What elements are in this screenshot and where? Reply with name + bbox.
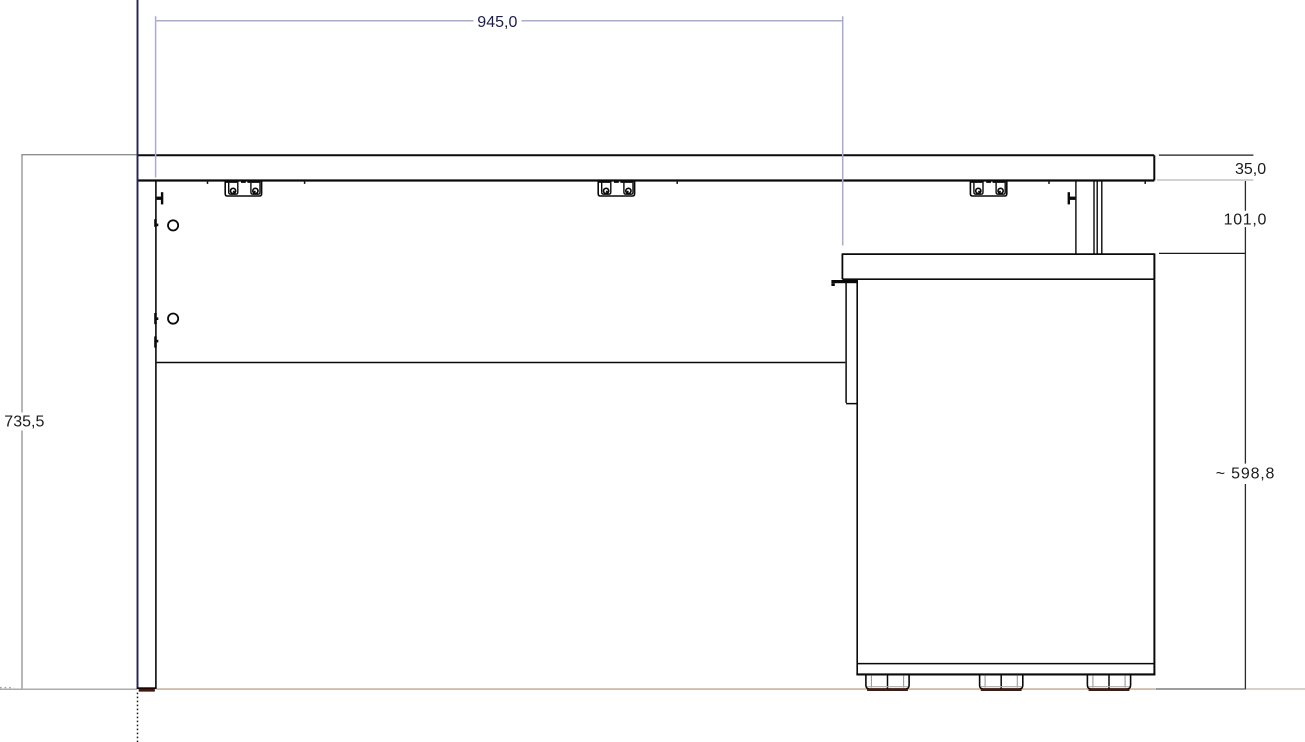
svg-text:945,0: 945,0 [477, 14, 517, 31]
svg-text:735,5: 735,5 [4, 414, 44, 431]
svg-text:101,0: 101,0 [1224, 211, 1268, 228]
svg-text:35,0: 35,0 [1235, 161, 1266, 178]
svg-text:~ 598,8: ~ 598,8 [1216, 465, 1275, 482]
